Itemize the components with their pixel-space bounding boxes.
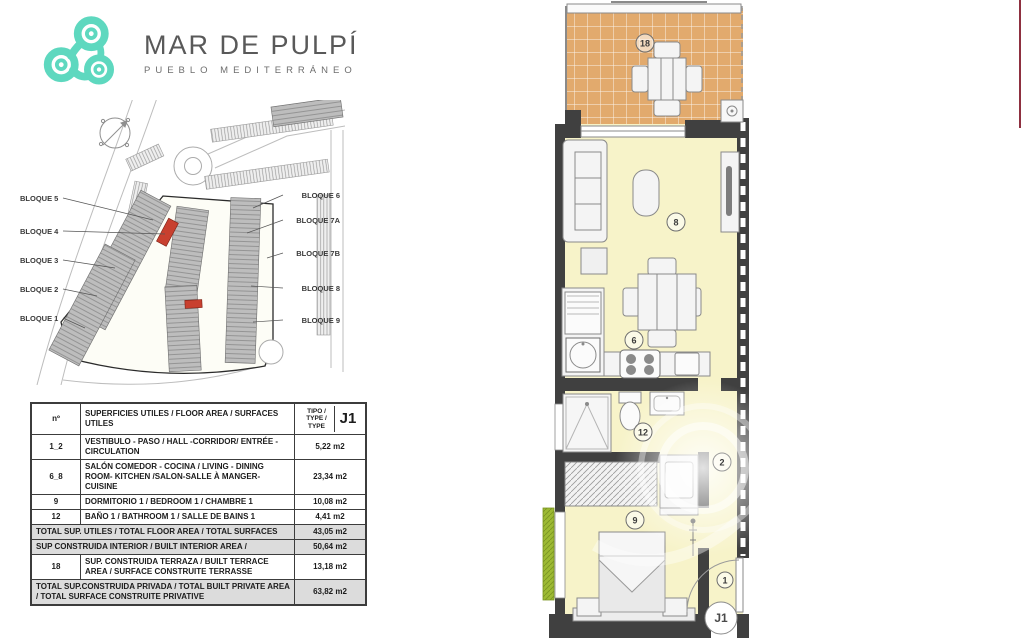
row-no: 1_2 bbox=[31, 435, 81, 460]
row-area: 10,08 m2 bbox=[295, 495, 367, 510]
label-bloque-6: BLOQUE 6 bbox=[302, 191, 340, 200]
unit-type-value: J1 bbox=[335, 406, 361, 432]
row-area: 43,05 m2 bbox=[295, 525, 367, 540]
bedroom-window bbox=[555, 512, 565, 598]
row-area: 63,82 m2 bbox=[295, 580, 367, 606]
row-desc: SALÓN COMEDOR - COCINA / LIVING - DINING… bbox=[81, 460, 295, 495]
row-no: 12 bbox=[31, 510, 81, 525]
row-desc: VESTIBULO - PASO / HALL -CORRIDOR/ ENTRÉ… bbox=[81, 435, 295, 460]
table-row: 1_2 VESTIBULO - PASO / HALL -CORRIDOR/ E… bbox=[31, 435, 366, 460]
table-row-built-interior: SUP CONSTRUIDA INTERIOR / BUILT INTERIOR… bbox=[31, 540, 366, 555]
brand-tagline: PUEBLO MEDITERRÁNEO bbox=[144, 65, 359, 76]
table-row-total-private: TOTAL SUP.CONSTRUIDA PRIVADA / TOTAL BUI… bbox=[31, 580, 366, 606]
svg-text:2: 2 bbox=[719, 458, 724, 468]
brand-name: MAR DE PULPÍ bbox=[144, 32, 359, 59]
table-row: 12 BAÑO 1 / BATHROOM 1 / SALLE DE BAINS … bbox=[31, 510, 366, 525]
coffee-table bbox=[633, 170, 659, 216]
row-desc: TOTAL SUP.CONSTRUIDA PRIVADA / TOTAL BUI… bbox=[31, 580, 295, 606]
label-bloque-7b: BLOQUE 7B bbox=[296, 249, 340, 258]
unit-type-badge: J1 bbox=[705, 602, 737, 634]
row-no: 9 bbox=[31, 495, 81, 510]
room-label-bathroom: 12 bbox=[634, 423, 652, 441]
room-label-dining: 6 bbox=[625, 331, 643, 349]
row-no: 18 bbox=[31, 555, 81, 580]
shower bbox=[563, 394, 611, 452]
building-rows bbox=[49, 100, 343, 372]
svg-text:8: 8 bbox=[673, 218, 678, 228]
table-row: 6_8 SALÓN COMEDOR - COCINA / LIVING - DI… bbox=[31, 460, 366, 495]
areas-table-wrap: nº SUPERFICIES UTILES / FLOOR AREA / SUR… bbox=[30, 402, 347, 606]
col-header-type: TIPO / TYPE / TYPE J1 bbox=[295, 403, 367, 435]
row-desc: SUP. CONSTRUIDA TERRAZA / BUILT TERRACE … bbox=[81, 555, 295, 580]
label-bloque-2: BLOQUE 2 bbox=[20, 285, 58, 294]
col-header-no: nº bbox=[31, 403, 81, 435]
room-label-bedroom: 9 bbox=[626, 511, 644, 529]
label-bloque-4: BLOQUE 4 bbox=[20, 227, 59, 236]
areas-table: nº SUPERFICIES UTILES / FLOOR AREA / SUR… bbox=[30, 402, 367, 606]
tv-unit bbox=[721, 152, 739, 232]
svg-text:18: 18 bbox=[640, 39, 650, 49]
floor-plan: 18 8 6 12 2 9 bbox=[535, 0, 765, 643]
small-roundabout bbox=[259, 340, 283, 364]
ac-unit bbox=[721, 100, 743, 122]
table-header-row: nº SUPERFICIES UTILES / FLOOR AREA / SUR… bbox=[31, 403, 366, 435]
site-plan: BLOQUE 5 BLOQUE 4 BLOQUE 3 BLOQUE 2 BLOQ… bbox=[15, 100, 345, 385]
tipo-type-label: TIPO / TYPE / TYPE bbox=[299, 406, 335, 432]
side-table bbox=[581, 248, 607, 274]
row-area: 23,34 m2 bbox=[295, 460, 367, 495]
brand-header: MAR DE PULPÍ PUEBLO MEDITERRÁNEO bbox=[38, 10, 359, 98]
svg-text:12: 12 bbox=[638, 428, 648, 438]
row-desc: SUP CONSTRUIDA INTERIOR / BUILT INTERIOR… bbox=[31, 540, 295, 555]
compass-icon bbox=[99, 118, 130, 148]
svg-text:9: 9 bbox=[632, 516, 637, 526]
row-no: 6_8 bbox=[31, 460, 81, 495]
label-bloque-8: BLOQUE 8 bbox=[302, 284, 340, 293]
svg-text:1: 1 bbox=[722, 576, 727, 586]
room-label-entrance: 1 bbox=[717, 572, 733, 588]
row-desc: DORMITORIO 1 / BEDROOM 1 / CHAMBRE 1 bbox=[81, 495, 295, 510]
label-bloque-5: BLOQUE 5 bbox=[20, 194, 58, 203]
plan-sheet: MAR DE PULPÍ PUEBLO MEDITERRÁNEO bbox=[0, 0, 1024, 643]
stove bbox=[620, 350, 660, 378]
table-row: 18 SUP. CONSTRUIDA TERRAZA / BUILT TERRA… bbox=[31, 555, 366, 580]
room-label-hall: 2 bbox=[713, 453, 731, 471]
table-row-total-utiles: TOTAL SUP. UTILES / TOTAL FLOOR AREA / T… bbox=[31, 525, 366, 540]
sofa bbox=[563, 140, 607, 242]
kitchen-sink-2 bbox=[675, 353, 699, 375]
svg-text:6: 6 bbox=[631, 336, 636, 346]
svg-text:J1: J1 bbox=[714, 611, 728, 625]
label-bloque-1: BLOQUE 1 bbox=[20, 314, 58, 323]
row-area: 5,22 m2 bbox=[295, 435, 367, 460]
table-row: 9 DORMITORIO 1 / BEDROOM 1 / CHAMBRE 1 1… bbox=[31, 495, 366, 510]
row-area: 50,64 m2 bbox=[295, 540, 367, 555]
room-label-terrace: 18 bbox=[636, 34, 654, 52]
garden-planter bbox=[543, 508, 554, 600]
row-desc: TOTAL SUP. UTILES / TOTAL FLOOR AREA / T… bbox=[31, 525, 295, 540]
scan-edge-artifact bbox=[1019, 0, 1021, 128]
row-area: 13,18 m2 bbox=[295, 555, 367, 580]
terrace-sliding-door bbox=[581, 126, 685, 137]
mar-de-pulpi-logo-icon bbox=[38, 10, 130, 98]
label-bloque-9: BLOQUE 9 bbox=[302, 316, 340, 325]
terrace-railing bbox=[567, 4, 741, 13]
label-bloque-7a: BLOQUE 7A bbox=[296, 216, 340, 225]
col-header-desc: SUPERFICIES UTILES / FLOOR AREA / SURFAC… bbox=[81, 403, 295, 435]
room-label-living: 8 bbox=[667, 213, 685, 231]
label-bloque-3: BLOQUE 3 bbox=[20, 256, 58, 265]
row-area: 4,41 m2 bbox=[295, 510, 367, 525]
row-desc: BAÑO 1 / BATHROOM 1 / SALLE DE BAINS 1 bbox=[81, 510, 295, 525]
